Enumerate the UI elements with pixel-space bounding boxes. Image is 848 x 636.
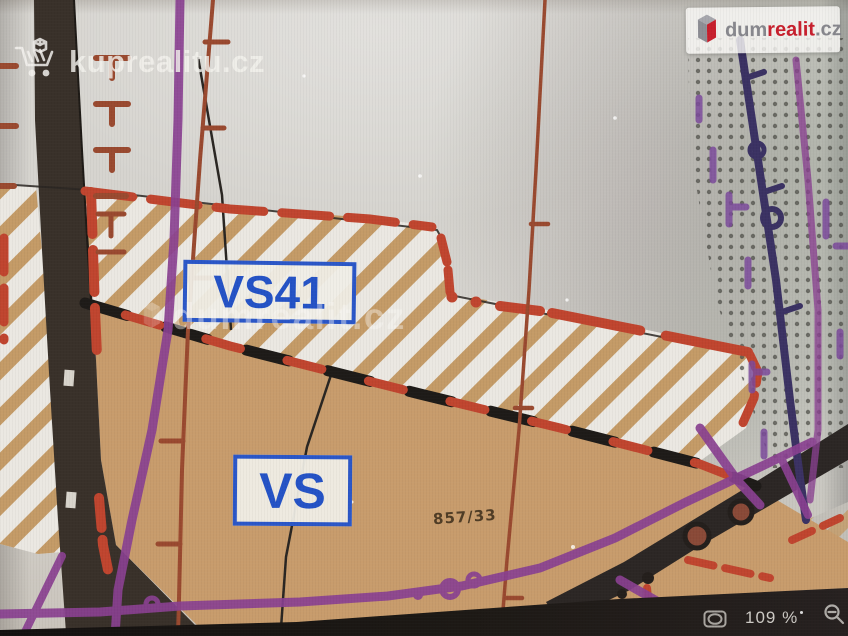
ring-symbol <box>730 501 752 523</box>
zone-label-vs: VS <box>233 455 352 527</box>
building-footprint <box>63 370 74 387</box>
dumrealit-logo: dumrealit.cz <box>686 6 840 54</box>
watermark-dumrealit-center: dumrealit.cz <box>142 296 406 338</box>
watermark-text: dumrealit.cz <box>172 296 406 338</box>
logo-text-dum: dum <box>725 18 767 40</box>
photographed-screen: VS41 VS 857/33 kuprealitu.cz <box>0 0 848 636</box>
fit-to-window-button[interactable] <box>703 610 727 633</box>
watermark-kuprealitu: kuprealitu.cz <box>14 36 265 88</box>
zone-code: VS <box>259 461 326 519</box>
zoning-map-image[interactable] <box>0 0 848 636</box>
building-footprint <box>65 492 76 509</box>
logo-text-cz: .cz <box>815 18 842 40</box>
red-gray-3d-box-icon <box>696 13 718 48</box>
zoom-out-button[interactable] <box>822 602 848 633</box>
logo-text-realit: realit <box>767 18 815 40</box>
zoom-level-indicator: 109 % <box>745 608 798 628</box>
shopping-cart-icon <box>14 36 60 88</box>
box-logo-icon-faint <box>142 296 162 338</box>
ring-symbol <box>685 524 709 548</box>
logo-text: dumrealit.cz <box>725 18 842 42</box>
watermark-text: kuprealitu.cz <box>69 44 265 80</box>
